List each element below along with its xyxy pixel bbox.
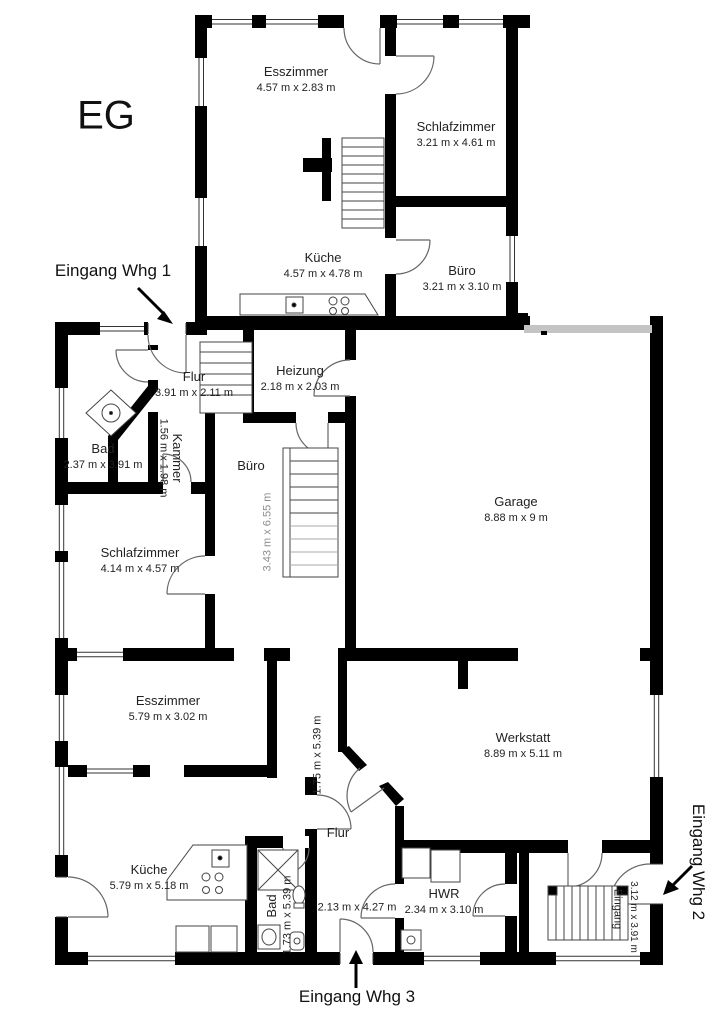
room-label-kammer-dims: 1.56 m x 1.98 m: [155, 419, 170, 498]
wall-pillar: [303, 138, 332, 201]
room-name: Bad: [64, 440, 143, 458]
window: [397, 15, 443, 28]
floor-label: EG: [77, 94, 135, 139]
window: [77, 648, 123, 661]
window: [55, 388, 68, 438]
room-label-eingang-name: Eingang: [609, 889, 624, 929]
room-name: Flur: [327, 824, 349, 842]
appliance-icon: [176, 926, 237, 952]
kitchen-counter-upper: [240, 294, 378, 315]
window: [55, 767, 68, 855]
door-arc: [344, 28, 380, 64]
room-name: Küche: [284, 249, 363, 267]
sink-icon: [212, 850, 229, 867]
room-dims: 3.12 m x 3.91 m: [626, 881, 640, 953]
room-label-schlafzimmer-upper: Schlafzimmer 3.21 m x 4.61 m: [417, 118, 496, 152]
staircase-upper: [342, 138, 384, 228]
door-arc: [347, 768, 384, 812]
room-name: HWR: [405, 885, 484, 903]
room-label-kueche: Küche 5.79 m x 5.18 m: [110, 861, 189, 895]
window: [55, 505, 68, 551]
room-dims: 4.57 m x 4.78 m: [284, 267, 363, 282]
room-label-esszimmer: Esszimmer 5.79 m x 3.02 m: [129, 692, 208, 726]
room-dims: 5.79 m x 3.02 m: [129, 710, 208, 725]
room-label-buero-mid: Büro: [237, 457, 264, 475]
room-label-bad-unten-name: Bad: [263, 894, 281, 917]
room-name: Büro: [423, 262, 502, 280]
room-dims: 3.21 m x 4.61 m: [417, 136, 496, 151]
window: [55, 695, 68, 741]
room-name: Garage: [484, 493, 548, 511]
room-name: Schlafzimmer: [101, 544, 180, 562]
room-dims: 8.89 m x 5.11 m: [484, 747, 562, 762]
room-label-hwr: HWR 2.34 m x 3.10 m: [405, 885, 484, 919]
room-label-eingang-dims: 3.12 m x 3.91 m: [626, 881, 640, 953]
room-dims: 8.88 m x 9 m: [484, 511, 548, 526]
door-arc: [340, 919, 373, 952]
window: [195, 58, 207, 106]
room-name: Bad: [263, 894, 281, 917]
sink-icon: [401, 930, 421, 950]
room-dims: 5.79 m x 5.18 m: [110, 879, 189, 894]
room-name: Werkstatt: [484, 729, 562, 747]
room-dims: 4.57 m x 2.83 m: [257, 81, 336, 96]
door-arc: [568, 853, 602, 887]
room-label-bad: Bad 2.37 m x 3.91 m: [64, 440, 143, 474]
entrance-label-whg3: Eingang Whg 3: [299, 987, 415, 1007]
sink-icon: [286, 297, 303, 313]
room-dims: 1.75 m x 5.39 m: [310, 716, 325, 795]
room-name: Esszimmer: [129, 692, 208, 710]
room-dims: 1.56 m x 1.98 m: [155, 419, 170, 498]
window: [55, 562, 68, 638]
room-label-bad-unten-dims: 1.73 m x 5.39 m: [280, 876, 295, 955]
sink-icon: [258, 925, 280, 949]
entrance-label-whg2: Eingang Whg 2: [688, 804, 708, 920]
room-label-esszimmer-upper: Esszimmer 4.57 m x 2.83 m: [257, 63, 336, 97]
room-name: Heizung: [261, 362, 340, 380]
room-label-werkstatt: Werkstatt 8.89 m x 5.11 m: [484, 729, 562, 763]
room-dims: 3.43 m x 6.55 m: [260, 493, 275, 572]
window: [88, 952, 175, 965]
window: [424, 952, 480, 965]
room-label-flur-mitte: Flur: [327, 824, 349, 842]
room-dims: 2.13 m x 4.27 m: [318, 900, 397, 915]
window: [195, 198, 207, 246]
window: [100, 322, 144, 335]
room-label-flur-mitte-dims-h: 2.13 m x 4.27 m: [318, 900, 397, 915]
door-arc: [68, 877, 108, 917]
window: [266, 15, 318, 28]
window: [506, 236, 518, 282]
entrance-label-whg1: Eingang Whg 1: [55, 261, 171, 281]
room-label-schlafzimmer: Schlafzimmer 4.14 m x 4.57 m: [101, 544, 180, 578]
door-arc: [116, 350, 148, 382]
door-arc: [396, 56, 434, 94]
room-dims: 3.91 m x 2.11 m: [155, 386, 233, 401]
room-name: Eingang: [609, 889, 624, 929]
room-label-flur-mitte-dims-v: 1.75 m x 5.39 m: [310, 716, 325, 795]
room-dims: 3.21 m x 3.10 m: [423, 280, 502, 295]
washer-icon: [402, 848, 460, 882]
floorplan-drawing: [0, 0, 716, 1024]
room-name: Flur: [155, 368, 233, 386]
floor-plan: EG Eingang Whg 1 Eingang Whg 2 Eingang W…: [0, 0, 716, 1024]
window: [459, 15, 503, 28]
room-dims: 2.18 m x 2.03 m: [261, 380, 340, 395]
room-label-heizung: Heizung 2.18 m x 2.03 m: [261, 362, 340, 396]
window: [87, 765, 133, 777]
room-dims: 2.34 m x 3.10 m: [405, 903, 484, 918]
room-label-buero-mid-dims: 3.43 m x 6.55 m: [260, 493, 275, 572]
arrow-entrance-whg1-icon: [138, 288, 173, 324]
wall-tick: [541, 331, 547, 335]
room-dims: 2.37 m x 3.91 m: [64, 458, 143, 473]
window: [212, 15, 252, 28]
room-label-flur: Flur 3.91 m x 2.11 m: [155, 368, 233, 402]
room-name: Schlafzimmer: [417, 118, 496, 136]
shower-icon: [86, 390, 136, 436]
room-name: Küche: [110, 861, 189, 879]
window: [556, 952, 640, 965]
staircase-buero: [283, 448, 338, 577]
bathroom-upper-fixtures: [86, 390, 136, 436]
room-label-kueche-upper: Küche 4.57 m x 4.78 m: [284, 249, 363, 283]
room-dims: 4.14 m x 4.57 m: [101, 562, 180, 577]
room-name: Esszimmer: [257, 63, 336, 81]
room-label-buero-upper: Büro 3.21 m x 3.10 m: [423, 262, 502, 296]
window: [650, 695, 663, 777]
room-name: Büro: [237, 457, 264, 475]
room-dims: 1.73 m x 5.39 m: [280, 876, 295, 955]
room-label-garage: Garage 8.88 m x 9 m: [484, 493, 548, 527]
